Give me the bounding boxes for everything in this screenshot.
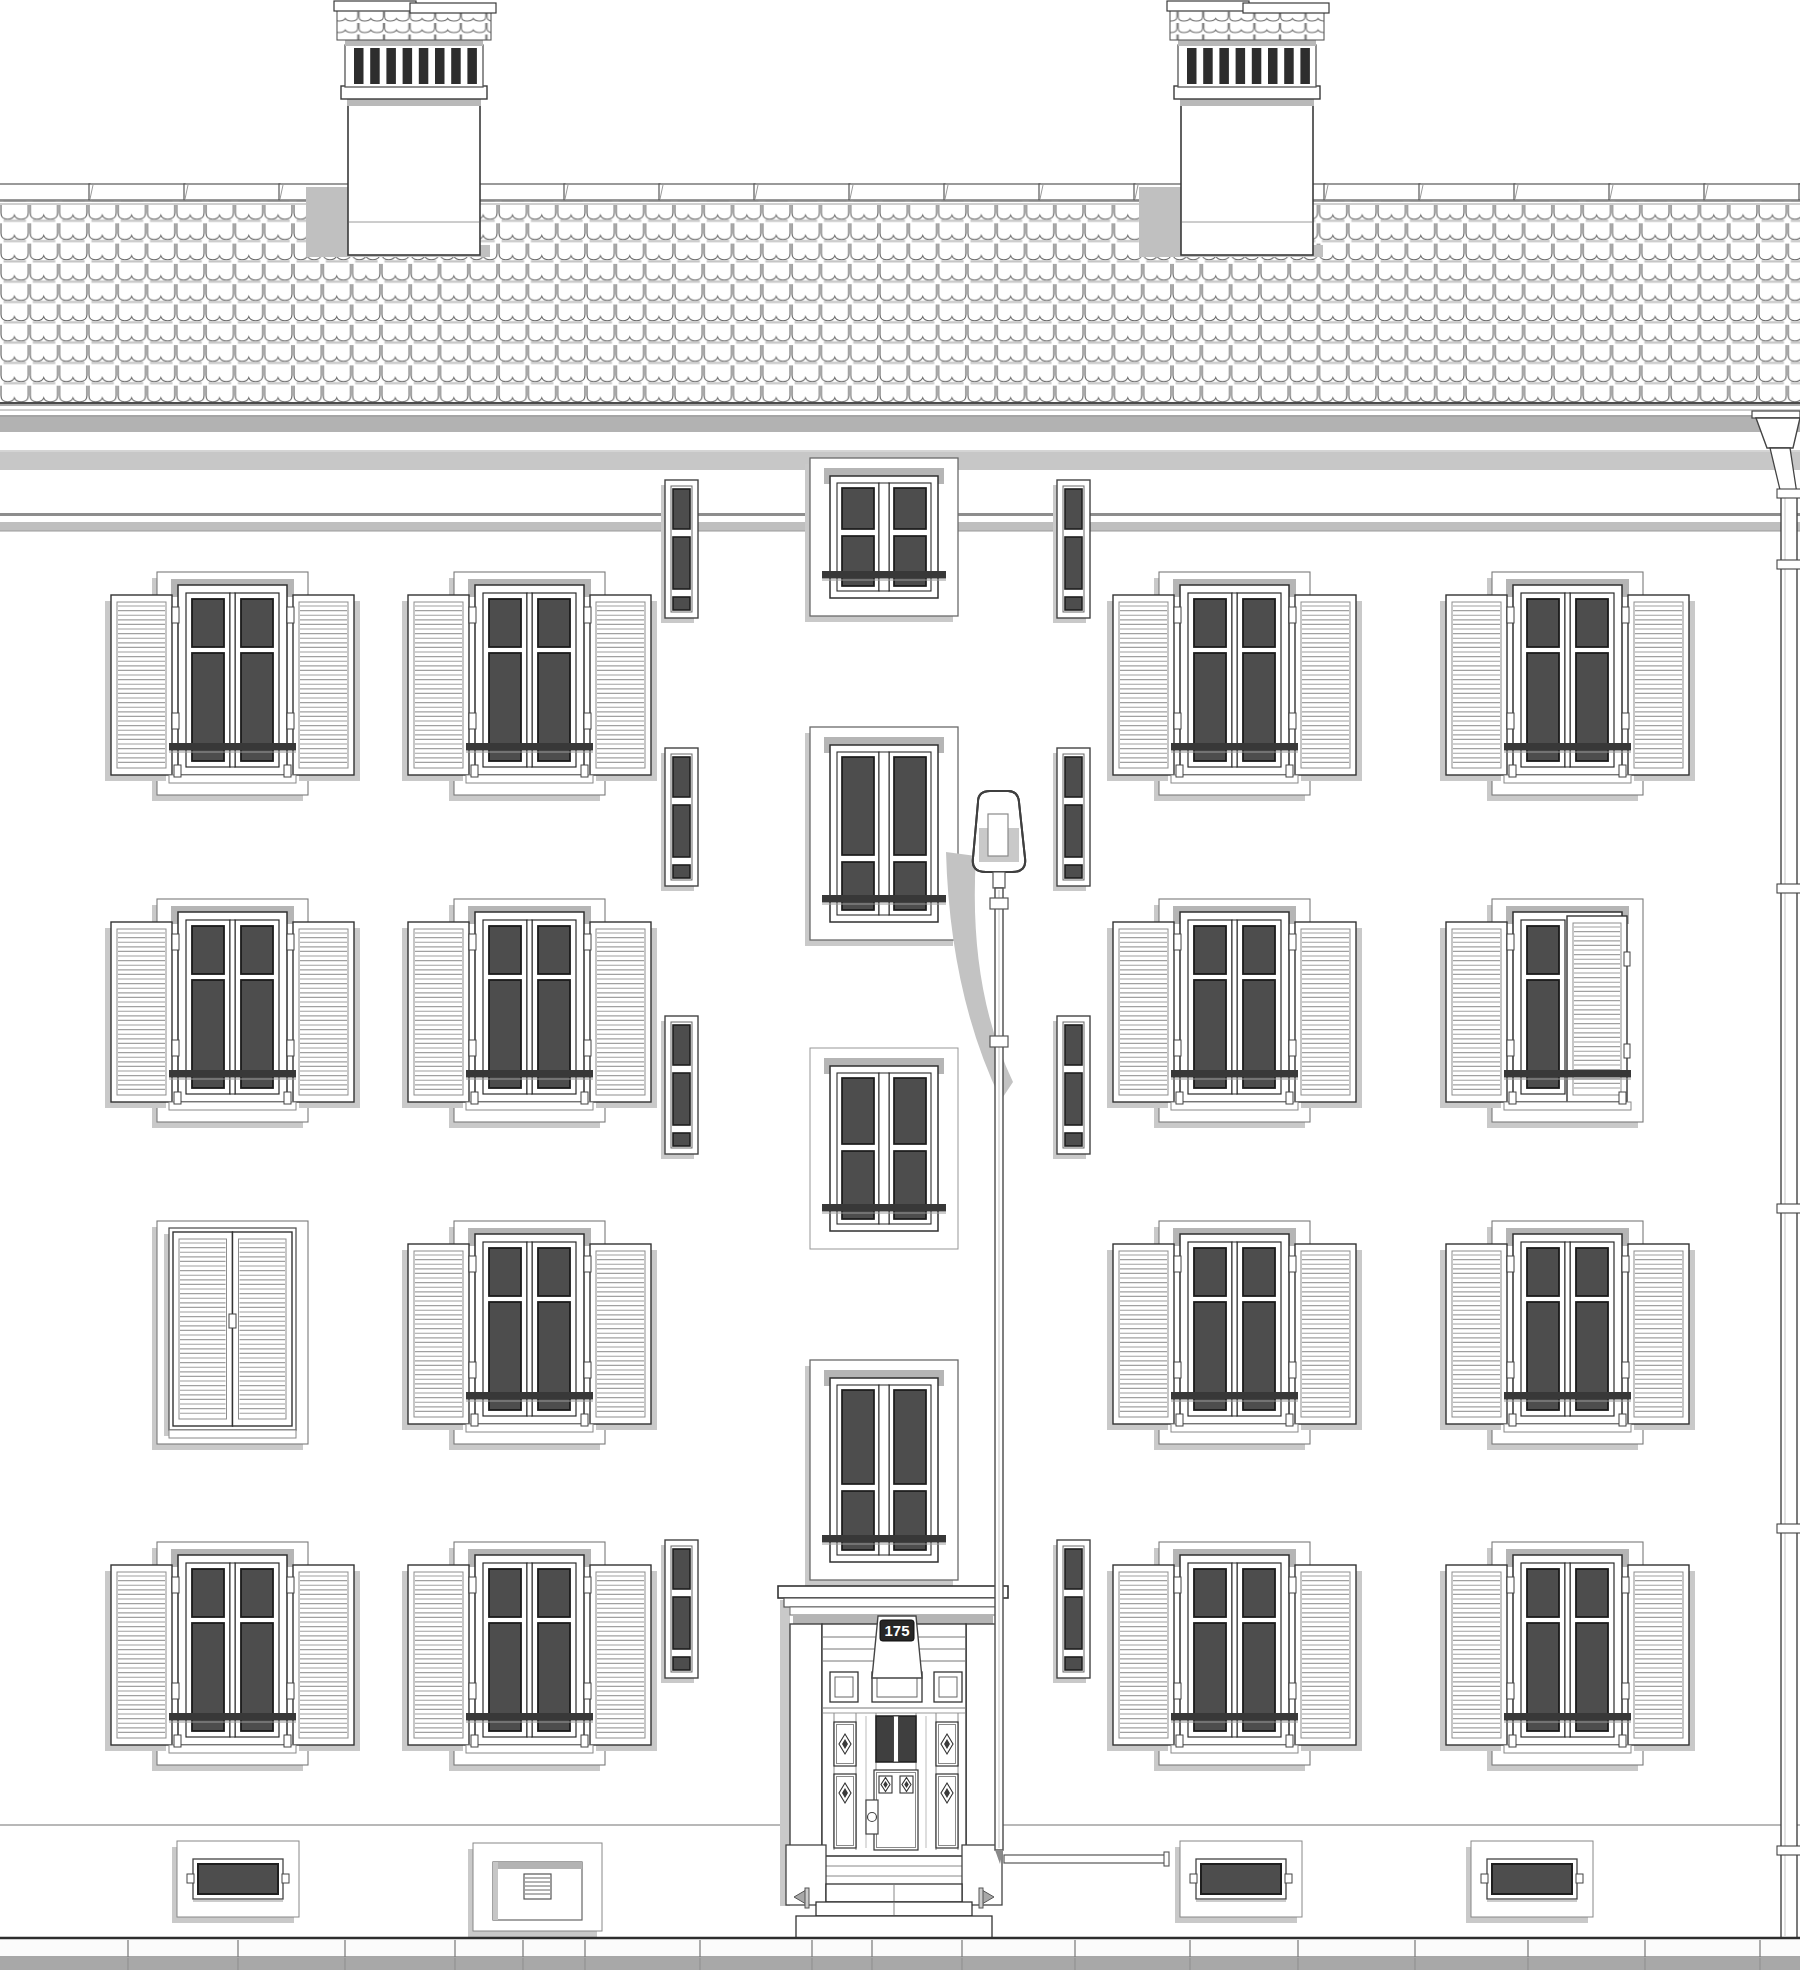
shutter [1446, 922, 1507, 1102]
ridge-cap [1704, 184, 1800, 200]
hinge-pin [1507, 713, 1514, 729]
window-glass [1065, 865, 1082, 878]
pipe-collar [1777, 884, 1800, 893]
ridge-cap [754, 184, 850, 200]
shutter-louvers [415, 606, 462, 762]
shutter [590, 1565, 651, 1745]
window-sill [169, 1430, 296, 1438]
window-sill [1504, 1424, 1631, 1432]
shutter-panel [1113, 1244, 1174, 1424]
window-unit [1440, 899, 1643, 1128]
window-glass [1065, 1073, 1082, 1125]
hinge-pin [1289, 1256, 1296, 1272]
shutter-panel [1628, 1244, 1689, 1424]
chimney-louver-slat [1252, 48, 1262, 84]
hinge-pin [1507, 1577, 1514, 1593]
roof-tile-field [0, 200, 1800, 403]
shutter-panel [408, 922, 469, 1102]
hinge-pin [1289, 607, 1296, 623]
hinge-pin [1190, 1874, 1197, 1883]
stair-slit-window [1053, 480, 1090, 623]
shutter [408, 1565, 469, 1745]
window-sill [1171, 1745, 1298, 1753]
window-glass [1065, 1025, 1082, 1065]
window-glass [673, 489, 690, 529]
shutter [590, 1244, 651, 1424]
window-unit [402, 572, 657, 801]
window-glass [673, 865, 690, 878]
shutter-louvers [118, 606, 165, 762]
window-glass [842, 862, 874, 910]
shutter [1628, 1565, 1689, 1745]
window-glass [673, 1073, 690, 1125]
stair-slit-window [661, 1540, 698, 1683]
chimney-louver-slat [1219, 48, 1229, 84]
hinge-pin [469, 1362, 476, 1378]
hinge-pin [287, 713, 294, 729]
shutter-panel [590, 1565, 651, 1745]
shutter-panel [1113, 595, 1174, 775]
window-glass [673, 1025, 690, 1065]
mullion [230, 920, 235, 1094]
mullion [1565, 1242, 1570, 1416]
hinge-pin [282, 1874, 289, 1883]
lamp-mantle [988, 814, 1008, 856]
railing [822, 571, 946, 579]
window-glass [1576, 599, 1608, 647]
hinge-pin [172, 1577, 179, 1593]
window-glass [673, 805, 690, 857]
window-sill [169, 1745, 296, 1753]
shutter [1295, 922, 1356, 1102]
window-glass [538, 1569, 570, 1617]
hinge-pin [1509, 765, 1516, 777]
ridge-cap [89, 184, 185, 200]
hinge-pin [1174, 1577, 1181, 1593]
hinge-pin [1174, 1256, 1181, 1272]
window-unit [105, 572, 360, 801]
chimney-louver-slat [435, 48, 445, 84]
window-glass [1527, 599, 1559, 647]
hinge-pin [1289, 934, 1296, 950]
shutter-panel [111, 595, 172, 775]
window-glass [1065, 537, 1082, 589]
ridge-cap [1419, 184, 1515, 200]
hinge-pin [1507, 1362, 1514, 1378]
chimney-louver-slat [451, 48, 461, 84]
window-sill [466, 775, 593, 783]
shutter-louvers [1120, 1255, 1167, 1411]
window-unit [152, 1221, 308, 1450]
hinge-pin [1576, 1874, 1583, 1883]
mullion [1565, 1563, 1570, 1737]
eaves-fascia [0, 432, 1800, 452]
shutter [408, 922, 469, 1102]
hinge-pin [1285, 1874, 1292, 1883]
shutter [233, 1232, 293, 1426]
hinge-pin [287, 934, 294, 950]
window-sill [169, 1102, 296, 1110]
door-pilaster [966, 1624, 998, 1856]
shutter [1446, 595, 1507, 775]
hinge-pin [1174, 607, 1181, 623]
hinge-pin [1624, 952, 1630, 966]
door-knob [868, 1813, 877, 1822]
window-glass [673, 1133, 690, 1146]
window-glass [1243, 926, 1275, 974]
shutter-louvers [597, 1576, 644, 1732]
hinge-pin [1507, 1040, 1514, 1056]
window-glass [1065, 597, 1082, 610]
pavement-slabs [0, 1940, 1800, 1958]
shutter-panel [1446, 1244, 1507, 1424]
window-sill [466, 1102, 593, 1110]
shutter [1628, 595, 1689, 775]
window-sill [466, 1745, 593, 1753]
window-glass [489, 599, 521, 647]
railing [1171, 743, 1298, 751]
window-glass [1527, 1248, 1559, 1296]
window-glass [673, 597, 690, 610]
window-glass [894, 862, 926, 910]
mullion [879, 1073, 889, 1224]
ridge-cap [0, 184, 90, 200]
pole-collar [990, 1036, 1008, 1047]
hinge-pin [584, 607, 591, 623]
shutter-louvers [597, 606, 644, 762]
ridge-cap [469, 184, 565, 200]
window-glass [673, 1657, 690, 1670]
ridge-cap [1039, 184, 1135, 200]
shutter-panel [1628, 595, 1689, 775]
basement-window [1175, 1841, 1302, 1923]
window-glass [538, 599, 570, 647]
hinge-pin [1622, 1683, 1629, 1699]
architectural-elevation-drawing: 175 [0, 0, 1800, 1970]
hinge-pin [1289, 713, 1296, 729]
window-unit [1440, 1221, 1695, 1450]
window-unit [1107, 1542, 1362, 1771]
shutter-louvers [597, 1255, 644, 1411]
shutter-panel [590, 595, 651, 775]
railing [466, 1392, 593, 1400]
shutter-panel [1113, 922, 1174, 1102]
window-sill [1504, 1102, 1631, 1110]
mullion [1232, 593, 1237, 767]
ridge-cap [944, 184, 1040, 200]
hinge-pin [581, 765, 588, 777]
hinge-pin [172, 1040, 179, 1056]
railing [1504, 1713, 1631, 1721]
window-unit [105, 899, 360, 1128]
door-cornice-top [778, 1586, 1008, 1598]
shutter-panel [590, 1244, 651, 1424]
hinge-pin [581, 1414, 588, 1426]
hinge-pin [1174, 1683, 1181, 1699]
shutter-panel [1295, 595, 1356, 775]
stair-slit-window [1053, 1016, 1090, 1159]
window-glass [192, 599, 224, 647]
railing [169, 1070, 296, 1078]
window-glass [241, 1569, 273, 1617]
shutter-panel [1446, 1565, 1507, 1745]
hinge-pin [1619, 765, 1626, 777]
shutter-panel [111, 1565, 172, 1745]
window-glass [673, 1597, 690, 1649]
railing [1504, 1070, 1631, 1078]
hinge-pin [284, 1735, 291, 1747]
window-glass [1065, 1549, 1082, 1589]
shutter-louvers [1302, 606, 1349, 762]
window-glass [241, 599, 273, 647]
shutter-louvers [1453, 606, 1500, 762]
window-glass [842, 1078, 874, 1144]
shutter-louvers [1120, 933, 1167, 1089]
window-sill [1171, 1102, 1298, 1110]
chimney-body [348, 105, 480, 255]
hinge-pin [1286, 1414, 1293, 1426]
roof [0, 184, 1800, 403]
hinge-pin [1174, 1362, 1181, 1378]
hinge-pin [1176, 1414, 1183, 1426]
shutter-louvers [118, 933, 165, 1089]
hinge-pin [1286, 1735, 1293, 1747]
shutter-panel [1446, 595, 1507, 775]
railing [822, 895, 946, 903]
stairwell-window [805, 1360, 958, 1586]
window-glass [1527, 1569, 1559, 1617]
chimney-louver-slat [403, 48, 413, 84]
door-step-platform [796, 1916, 992, 1938]
pavement [0, 1938, 1800, 1970]
chimney-louver-slat [354, 48, 364, 84]
shutter [111, 1565, 172, 1745]
ridge-cap [1609, 184, 1705, 200]
mullion [230, 1563, 235, 1737]
hinge-pin [471, 1092, 478, 1104]
chimney-louver-slat [1300, 48, 1310, 84]
hinge-pin [1176, 1735, 1183, 1747]
window-glass [1065, 489, 1082, 529]
hinge-pin [584, 1040, 591, 1056]
shutter [1295, 1565, 1356, 1745]
shutter [590, 922, 651, 1102]
window-glass [1194, 1569, 1226, 1617]
window-unit [402, 899, 657, 1128]
railing [822, 1204, 946, 1212]
railing [1171, 1070, 1298, 1078]
shutter-louvers [1120, 606, 1167, 762]
window-glass [842, 488, 874, 529]
hinge-pin [469, 1577, 476, 1593]
hinge-pin [1174, 1040, 1181, 1056]
shutter-panel [293, 595, 354, 775]
chimney-shadow [1139, 187, 1183, 257]
shutter [1295, 1244, 1356, 1424]
hinge-pin [284, 1092, 291, 1104]
building-facade-drawing: 175 [0, 0, 1800, 1970]
hinge-pin [1622, 1577, 1629, 1593]
window-glass [1576, 1248, 1608, 1296]
shutter-panel [1446, 922, 1507, 1102]
chimney-louver-slat [386, 48, 396, 84]
chimney-coping [1167, 1, 1249, 11]
hinge-pin [172, 607, 179, 623]
window-unit [402, 1542, 657, 1771]
window-glass [842, 1390, 874, 1484]
window-glass [894, 1390, 926, 1484]
shutter-panel [590, 922, 651, 1102]
pipe-collar [1777, 489, 1800, 498]
lamp-neck [993, 872, 1005, 888]
door-cornice-molding [790, 1607, 996, 1615]
shutter [293, 595, 354, 775]
hinge-pin [471, 1414, 478, 1426]
mullion [527, 593, 532, 767]
shutter [408, 595, 469, 775]
mullion [1232, 1242, 1237, 1416]
chimney-louver-slat [467, 48, 477, 84]
hinge-pin [469, 1040, 476, 1056]
hinge-pin [1619, 1735, 1626, 1747]
shutter-panel [1295, 922, 1356, 1102]
hinge-pin [1507, 1683, 1514, 1699]
window-glass [1065, 757, 1082, 797]
chimney-louver-slat [419, 48, 429, 84]
window-glass [1194, 1248, 1226, 1296]
shutter-louvers [1453, 933, 1500, 1089]
hinge-pin [1509, 1735, 1516, 1747]
basement-vent [468, 1843, 602, 1937]
mullion [1565, 593, 1570, 767]
door-glazing-mullion [894, 1716, 899, 1762]
window-glass [1065, 1597, 1082, 1649]
hinge-pin [284, 765, 291, 777]
mullion [527, 1242, 532, 1416]
shutter-panel [1295, 1244, 1356, 1424]
hinge-pin [1619, 1414, 1626, 1426]
railing [1504, 1392, 1631, 1400]
window-unit [1107, 899, 1362, 1128]
window-glass [241, 926, 273, 974]
window-glass [1194, 926, 1226, 974]
shutter [1113, 922, 1174, 1102]
window-glass [489, 1248, 521, 1296]
ridge-cap [659, 184, 755, 200]
shutter-panel [1295, 1565, 1356, 1745]
conduit-bar [1004, 1855, 1166, 1863]
window-glass [1201, 1864, 1281, 1894]
mullion [879, 752, 889, 915]
hinge-pin [1509, 1092, 1516, 1104]
hinge-pin [187, 1874, 194, 1883]
railing [169, 743, 296, 751]
door-number-text: 175 [884, 1622, 909, 1639]
shutter-panel [293, 922, 354, 1102]
mullion [1232, 920, 1237, 1094]
pipe-collar [1777, 1524, 1800, 1533]
shutter [1113, 595, 1174, 775]
conduit-end-cap [1164, 1852, 1169, 1866]
stairwell-window [810, 1048, 958, 1249]
hinge-pin [1289, 1577, 1296, 1593]
window-unit [105, 1542, 360, 1771]
shutter [1628, 1244, 1689, 1424]
pipe-collar [1777, 1846, 1800, 1855]
window-glass [1527, 926, 1559, 974]
window-unit [402, 1221, 657, 1450]
railing [466, 1713, 593, 1721]
hinge-pin [469, 607, 476, 623]
shutter-louvers [1120, 1576, 1167, 1732]
window-sill [1171, 775, 1298, 783]
window-glass [894, 1078, 926, 1144]
ridge-cap [564, 184, 660, 200]
railing [1171, 1392, 1298, 1400]
hinge-pin [1507, 1256, 1514, 1272]
ridge-cap [184, 184, 280, 200]
window-glass [1065, 1657, 1082, 1670]
shutter-panel [1113, 1565, 1174, 1745]
pipe-collar [1777, 560, 1800, 569]
shutter-panel [111, 922, 172, 1102]
railing [169, 1713, 296, 1721]
pipe-collar [1777, 1204, 1800, 1213]
hopper-rim [1752, 411, 1800, 418]
hinge-pin [584, 713, 591, 729]
railing [466, 743, 593, 751]
ridge-cap [1324, 184, 1420, 200]
shutter-louvers [415, 1576, 462, 1732]
shutter-louvers [1635, 1255, 1682, 1411]
window-glass [842, 757, 874, 855]
hinge-pin [1622, 713, 1629, 729]
shutter-louvers [1453, 1255, 1500, 1411]
window-glass [1065, 805, 1082, 857]
hinge-pin [1507, 934, 1514, 950]
hinge-pin [471, 1735, 478, 1747]
stair-slit-window [661, 748, 698, 891]
hinge-pin [1622, 1256, 1629, 1272]
window-glass [192, 1569, 224, 1617]
stair-slit-window [1053, 1540, 1090, 1683]
shutter-louvers [597, 933, 644, 1089]
mullion [527, 920, 532, 1094]
shutter [408, 1244, 469, 1424]
shutter [293, 1565, 354, 1745]
chimney-louver-slat [1187, 48, 1197, 84]
window-unit [1440, 1542, 1695, 1771]
shutter-panel [293, 1565, 354, 1745]
window-glass [1576, 1569, 1608, 1617]
chimney-coping [1243, 3, 1329, 13]
railing [466, 1070, 593, 1078]
window-glass [1065, 1133, 1082, 1146]
stair-slit-window [661, 1016, 698, 1159]
mullion [879, 1385, 889, 1555]
shutter-louvers [1302, 1255, 1349, 1411]
shutter-louvers [1635, 606, 1682, 762]
shutter [111, 595, 172, 775]
hinge-pin [174, 765, 181, 777]
hinge-pin [287, 1577, 294, 1593]
hinge-pin [1176, 765, 1183, 777]
window-glass [894, 757, 926, 855]
shutter-louvers [1302, 933, 1349, 1089]
shutter-louvers [300, 933, 347, 1089]
hinge-pin [471, 765, 478, 777]
shutter [111, 922, 172, 1102]
